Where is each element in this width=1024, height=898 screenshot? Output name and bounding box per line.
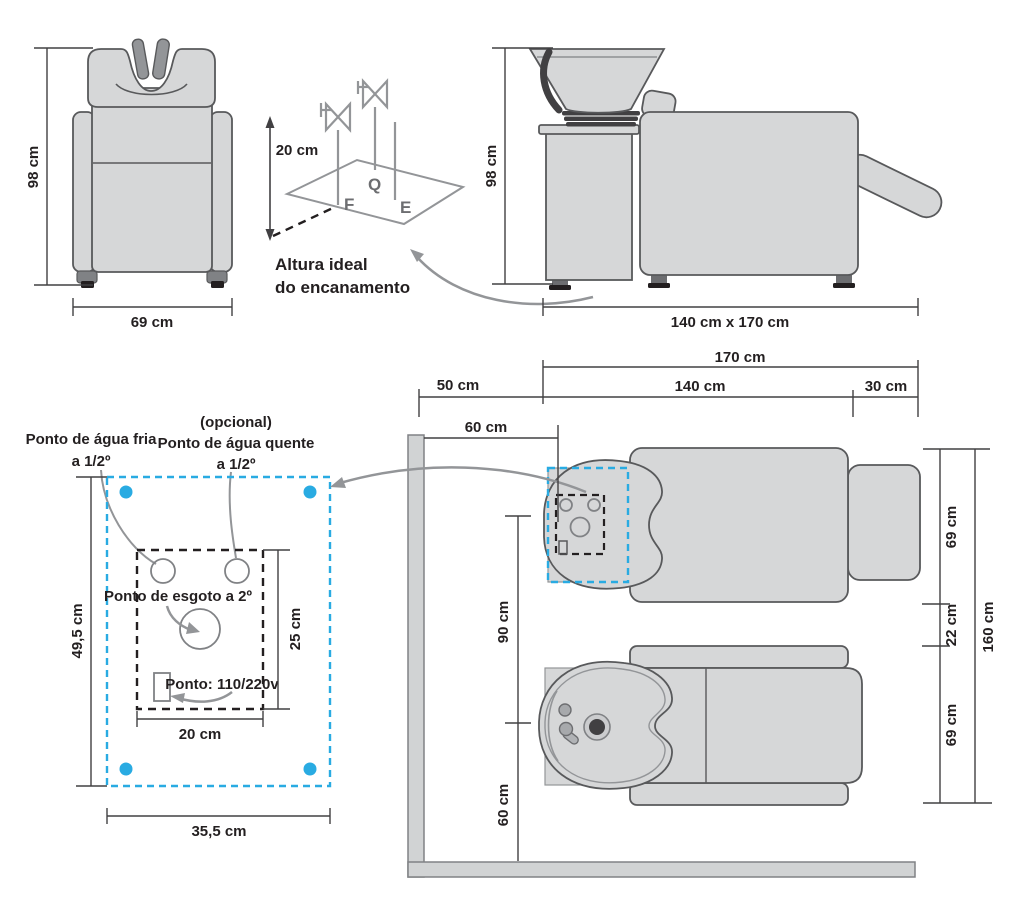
chair1-body [630, 448, 848, 602]
floor-chair-1 [544, 448, 920, 602]
legrest-length-label: 30 cm [865, 378, 908, 395]
hot-water-label-1: Ponto de água quente [158, 435, 315, 452]
unit-offset-label: 60 cm [465, 419, 508, 436]
cold-water-leader-line [101, 470, 156, 564]
outer-height-label: 49,5 cm [69, 603, 86, 658]
side-footprint-label: 140 cm x 170 cm [671, 314, 789, 331]
front-feet [77, 271, 227, 288]
wall-vertical [408, 435, 424, 877]
gap-label: 22 cm [943, 604, 960, 647]
cold-water-label-1: Ponto de água fria [26, 431, 158, 448]
cold-water-point [151, 559, 175, 583]
pipe-q [358, 81, 387, 170]
plan-dim-spacing: 90 cm 60 cm [495, 516, 531, 861]
power-arrow [170, 692, 232, 703]
detail-dim-outer-height: 49,5 cm [69, 477, 107, 786]
plan-dim-right-chain: 69 cm 22 cm 69 cm 160 cm [922, 449, 997, 803]
floor-plan: 170 cm 140 cm 30 cm 50 cm 60 cm 90 cm 60… [330, 349, 997, 877]
pipe-height-label: 20 cm [276, 142, 319, 159]
chair2-armrest-bottom [630, 783, 848, 805]
wall-clearance-label: 60 cm [495, 784, 512, 827]
front-basin [88, 49, 215, 107]
mount-dot-icon [304, 486, 317, 499]
side-height-label: 98 cm [483, 145, 500, 188]
point-e-label: E [400, 198, 411, 217]
mount-dot-icon [304, 763, 317, 776]
diagram-canvas: 98 cm 69 cm [0, 0, 1024, 898]
front-dim-width: 69 cm [73, 298, 232, 331]
side-view: 98 cm 140 cm x 170 cm [483, 48, 946, 331]
point-f-label: F [344, 195, 354, 214]
front-height-label: 98 cm [25, 146, 42, 189]
caption-line1: Altura ideal [275, 255, 368, 274]
front-width-label: 69 cm [131, 314, 174, 331]
hot-water-leader-line [230, 472, 236, 558]
hot-water-label-2: a 1/2º [217, 456, 256, 473]
point-q-label: Q [368, 175, 381, 194]
inner-height-label: 25 cm [287, 608, 304, 651]
wall-horizontal [408, 862, 915, 877]
dashed-projection-line [273, 207, 335, 236]
chair1-width-label: 69 cm [943, 506, 960, 549]
chair2-width-label: 69 cm [943, 704, 960, 747]
side-dim-footprint: 140 cm x 170 cm [543, 298, 918, 331]
caption-line2: do encanamento [275, 278, 410, 297]
wall-offset-label: 50 cm [437, 377, 480, 394]
valve-icon [358, 81, 387, 107]
faucet-handle-icon [152, 38, 170, 79]
chair2-armrest-top [630, 646, 848, 668]
power-label: Ponto: 110/220v [165, 676, 279, 693]
cold-water-label-2: a 1/2º [72, 453, 111, 470]
total-width-label: 160 cm [980, 602, 997, 653]
basin-spacing-label: 90 cm [495, 601, 512, 644]
front-seat-body [92, 88, 212, 272]
mount-dot-icon [120, 486, 133, 499]
detail-dim-inner-width: 20 cm [137, 711, 263, 743]
outer-width-label: 35,5 cm [191, 823, 246, 840]
wall-points-detail: Ponto de água fria a 1/2º (opcional) Pon… [26, 414, 330, 840]
pipe-height-diagram: F Q E 20 cm Altura ideal do encanamento [266, 81, 594, 304]
floor-chair-2 [539, 646, 862, 805]
chair-length-label: 140 cm [675, 378, 726, 395]
chair2-faucet-base [560, 723, 573, 736]
side-chair-body [640, 112, 858, 275]
front-faucet-handles [132, 38, 170, 79]
chair2-faucet-knob [559, 704, 571, 716]
hot-water-point [225, 559, 249, 583]
mount-dot-icon [120, 763, 133, 776]
plan-dim-top: 170 cm 140 cm 30 cm 50 cm [419, 349, 918, 417]
detail-dim-outer-width: 35,5 cm [107, 808, 330, 840]
valve-icon [321, 103, 350, 130]
hot-water-optional-label: (opcional) [200, 414, 272, 431]
installation-diagram: 98 cm 69 cm [0, 0, 1024, 898]
drain-label: Ponto de esgoto a 2º [104, 588, 253, 605]
height-arrow [266, 116, 275, 241]
pipe-f [321, 103, 350, 205]
front-view: 98 cm 69 cm [25, 38, 232, 331]
chair2-drain-icon [589, 719, 605, 735]
chair1-legrest [848, 465, 920, 580]
inner-width-label: 20 cm [179, 726, 222, 743]
total-length-label: 170 cm [715, 349, 766, 366]
side-pedestal-cabinet [546, 132, 632, 280]
front-armrest-right [210, 112, 232, 272]
